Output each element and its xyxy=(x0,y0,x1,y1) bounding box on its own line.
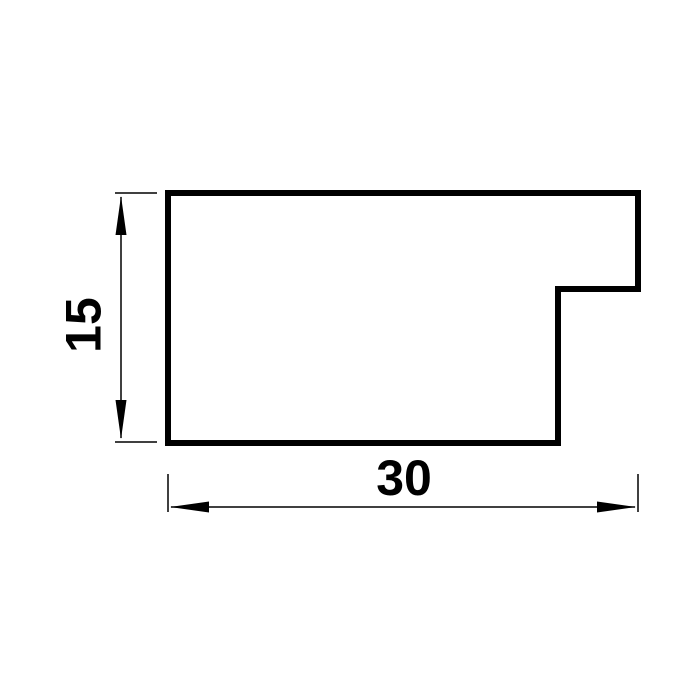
arrowhead-up-icon xyxy=(116,196,127,235)
drawing-canvas: 15 30 xyxy=(0,0,700,700)
arrowhead-down-icon xyxy=(116,400,127,439)
arrowhead-right-icon xyxy=(597,502,636,513)
profile-drawing: 15 30 xyxy=(0,0,700,700)
width-dimension-label: 30 xyxy=(376,450,432,506)
profile-outline xyxy=(168,193,638,443)
arrowhead-left-icon xyxy=(170,502,209,513)
height-dimension-label: 15 xyxy=(56,297,112,353)
